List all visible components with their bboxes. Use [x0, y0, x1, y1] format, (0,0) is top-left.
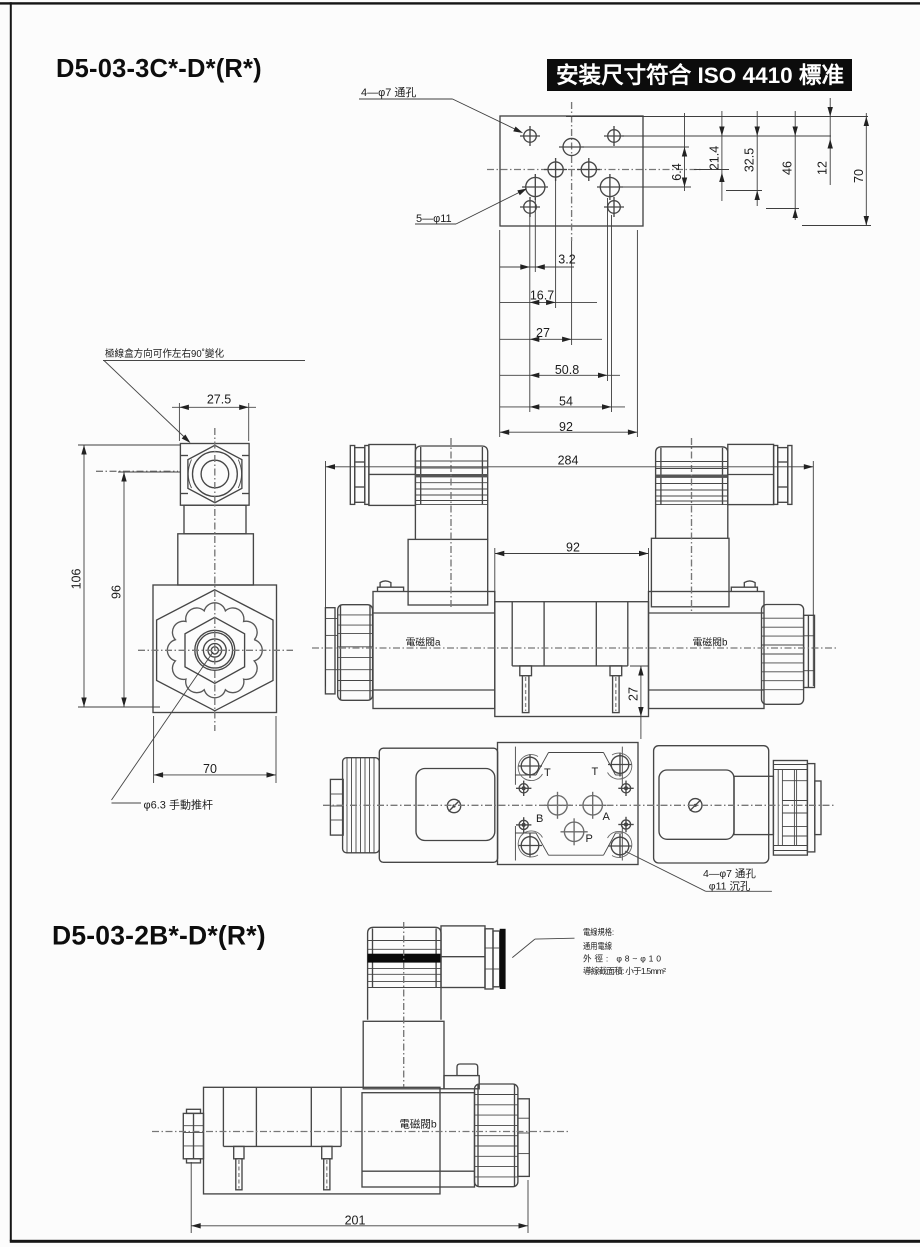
svg-text:通用電線: 通用電線: [583, 940, 612, 951]
svg-text:27: 27: [536, 326, 550, 340]
svg-text:96: 96: [110, 585, 124, 599]
svg-text:6.4: 6.4: [670, 163, 684, 180]
svg-text:46: 46: [781, 161, 795, 175]
svg-text:T: T: [544, 767, 551, 779]
svg-text:D5-03-3C*-D*(R*): D5-03-3C*-D*(R*): [56, 55, 262, 83]
svg-text:27.5: 27.5: [207, 393, 231, 407]
svg-text:A: A: [603, 811, 611, 823]
svg-text:3.2: 3.2: [558, 253, 575, 267]
svg-text:電磁閥b: 電磁閥b: [693, 636, 728, 649]
svg-text:284: 284: [558, 454, 579, 468]
svg-text:92: 92: [559, 420, 573, 434]
svg-text:4—φ7 通孔: 4—φ7 通孔: [361, 86, 416, 99]
svg-text:φ6.3 手動推杆: φ6.3 手動推杆: [144, 798, 213, 812]
svg-text:12: 12: [816, 161, 830, 175]
svg-text:92: 92: [566, 541, 580, 555]
svg-text:電磁閥a: 電磁閥a: [406, 636, 441, 649]
svg-text:16.7: 16.7: [530, 289, 554, 303]
svg-text:電線規格:: 電線規格:: [583, 926, 614, 937]
svg-text:5—φ11: 5—φ11: [416, 213, 452, 225]
svg-text:φ11 沉孔: φ11 沉孔: [709, 880, 751, 893]
svg-text:外徑: φ8~φ10: 外徑: φ8~φ10: [583, 953, 661, 964]
svg-text:70: 70: [852, 169, 866, 183]
svg-text:安装尺寸符合 ISO 4410 標准: 安装尺寸符合 ISO 4410 標准: [556, 62, 844, 88]
svg-text:70: 70: [203, 762, 217, 776]
svg-text:32.5: 32.5: [743, 148, 757, 172]
svg-text:D5-03-2B*-D*(R*): D5-03-2B*-D*(R*): [52, 921, 266, 951]
svg-text:27: 27: [626, 687, 640, 701]
svg-text:201: 201: [345, 1214, 366, 1228]
svg-text:P: P: [586, 833, 593, 845]
svg-text:21.4: 21.4: [707, 146, 721, 170]
svg-text:導線截面積: 小于1.5mm²: 導線截面積: 小于1.5mm²: [583, 965, 666, 976]
svg-text:4—φ7 通孔: 4—φ7 通孔: [703, 867, 756, 880]
svg-text:B: B: [536, 813, 543, 825]
svg-text:T: T: [592, 766, 599, 778]
svg-text:極線盒方向可作左右90˚變化: 極線盒方向可作左右90˚變化: [105, 347, 224, 360]
svg-text:電磁閥b: 電磁閥b: [399, 1118, 436, 1131]
svg-text:106: 106: [70, 569, 84, 590]
svg-text:50.8: 50.8: [555, 363, 579, 377]
svg-text:54: 54: [559, 395, 573, 409]
